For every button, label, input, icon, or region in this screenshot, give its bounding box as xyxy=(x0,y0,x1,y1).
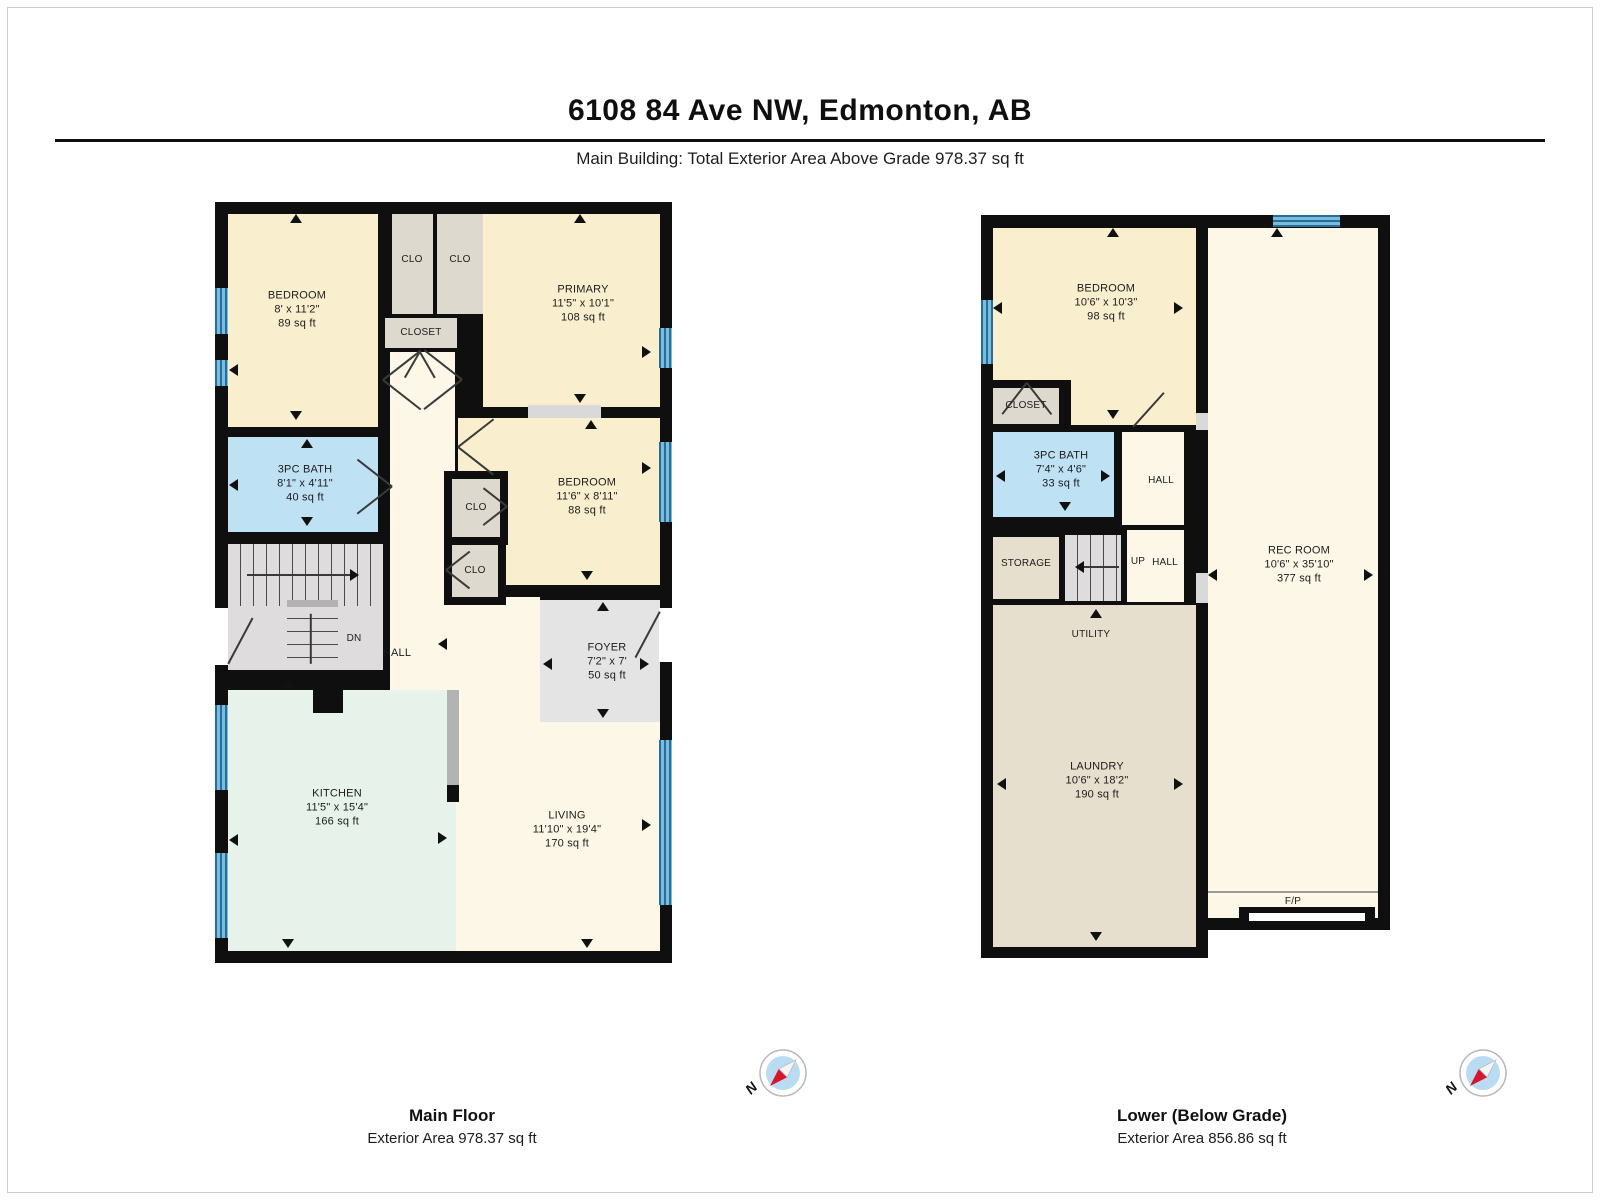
text-label: UP xyxy=(1131,556,1145,569)
overlay-sill xyxy=(528,405,601,418)
window xyxy=(215,288,228,334)
direction-arrow-icon xyxy=(585,420,597,429)
direction-arrow-icon xyxy=(438,638,447,650)
direction-arrow-icon xyxy=(282,939,294,948)
window xyxy=(659,740,672,905)
direction-arrow-icon xyxy=(229,479,238,491)
direction-arrow-icon xyxy=(997,778,1006,790)
label-living: LIVING 11'10" x 19'4" 170 sq ft xyxy=(533,809,601,850)
compass-rose-icon xyxy=(1459,1049,1507,1097)
main-floor-caption: Main Floor Exterior Area 978.37 sq ft xyxy=(252,1106,652,1147)
window xyxy=(659,328,672,368)
window xyxy=(215,853,228,938)
direction-arrow-icon xyxy=(640,658,649,670)
overlay-white xyxy=(1249,913,1365,921)
direction-arrow-icon xyxy=(438,832,447,844)
lower-floor: BEDROOM 10'6" x 10'3" 98 sq ft3PC BATH 7… xyxy=(981,215,1390,958)
direction-arrow-icon xyxy=(301,517,313,526)
direction-arrow-icon xyxy=(229,364,238,376)
direction-arrow-icon xyxy=(574,214,586,223)
direction-arrow-icon xyxy=(1075,561,1084,573)
direction-arrow-icon xyxy=(1107,410,1119,419)
page-title: 6108 84 Ave NW, Edmonton, AB xyxy=(0,94,1600,128)
overlay-wall xyxy=(447,785,459,802)
overlay-landing xyxy=(447,690,459,785)
title-divider xyxy=(55,139,1545,142)
window xyxy=(981,300,993,364)
overlay-sill xyxy=(1196,413,1208,430)
floorplan-page: { "header": { "title": "6108 84 Ave NW, … xyxy=(0,0,1600,1200)
door-swing-line xyxy=(1079,566,1119,568)
text-label: CLO xyxy=(464,565,485,578)
text-label: HALL xyxy=(1152,557,1178,570)
floor-name: Main Floor xyxy=(252,1106,652,1126)
lower-floor-caption: Lower (Below Grade) Exterior Area 856.86… xyxy=(1002,1106,1402,1147)
stairs xyxy=(287,606,338,670)
direction-arrow-icon xyxy=(543,658,552,670)
direction-arrow-icon xyxy=(301,439,313,448)
label-closet-hall: CLOSET xyxy=(400,327,441,340)
compass-north-label: N xyxy=(742,1079,760,1097)
window xyxy=(215,360,228,386)
compass-icon: N xyxy=(1459,1049,1507,1097)
direction-arrow-icon xyxy=(1364,569,1373,581)
direction-arrow-icon xyxy=(574,394,586,403)
direction-arrow-icon xyxy=(1107,228,1119,237)
direction-arrow-icon xyxy=(1101,470,1110,482)
direction-arrow-icon xyxy=(597,709,609,718)
direction-arrow-icon xyxy=(1271,228,1283,237)
label-rec-room: REC ROOM 10'6" x 35'10" 377 sq ft xyxy=(1264,544,1333,585)
direction-arrow-icon xyxy=(642,462,651,474)
overlay-fpline xyxy=(1208,891,1378,893)
direction-arrow-icon xyxy=(229,834,238,846)
direction-arrow-icon xyxy=(642,819,651,831)
label-closet-1: CLO xyxy=(401,254,422,267)
compass-rose-icon xyxy=(759,1049,807,1097)
door-swing-line xyxy=(310,614,312,664)
direction-arrow-icon xyxy=(350,569,359,581)
direction-arrow-icon xyxy=(1090,932,1102,941)
overlay-white xyxy=(215,608,228,665)
overlay-landing xyxy=(287,600,338,607)
door-swing-line xyxy=(247,574,353,576)
overlay-white xyxy=(659,608,672,662)
direction-arrow-icon xyxy=(597,602,609,611)
label-kitchen: KITCHEN 11'5" x 15'4" 166 sq ft xyxy=(306,787,368,828)
direction-arrow-icon xyxy=(290,411,302,420)
direction-arrow-icon xyxy=(993,302,1002,314)
label-hall-upper: HALL xyxy=(1148,475,1174,488)
stairs xyxy=(1065,535,1121,601)
floor-area: Exterior Area 978.37 sq ft xyxy=(252,1130,652,1147)
label-bedroom: BEDROOM 10'6" x 10'3" 98 sq ft xyxy=(1075,282,1138,323)
label-primary: PRIMARY 11'5" x 10'1" 108 sq ft xyxy=(552,283,614,324)
label-bath: 3PC BATH 8'1" x 4'11" 40 sq ft xyxy=(277,463,333,504)
direction-arrow-icon xyxy=(1208,569,1217,581)
label-foyer: FOYER 7'2" x 7' 50 sq ft xyxy=(587,641,627,682)
direction-arrow-icon xyxy=(1090,609,1102,618)
label-bedroom-1: BEDROOM 8' x 11'2" 89 sq ft xyxy=(268,289,326,330)
text-label: HALL xyxy=(383,647,411,661)
label-bedroom-2: BEDROOM 11'6" x 8'11" 88 sq ft xyxy=(556,476,617,517)
direction-arrow-icon xyxy=(1174,778,1183,790)
direction-arrow-icon xyxy=(581,939,593,948)
text-label: CLOSET xyxy=(1005,400,1046,413)
main-floor: BEDROOM 8' x 11'2" 89 sq ftCLOCLOCLOSETP… xyxy=(215,202,672,963)
window xyxy=(1273,215,1340,227)
direction-arrow-icon xyxy=(290,214,302,223)
compass-icon: N xyxy=(759,1049,807,1097)
direction-arrow-icon xyxy=(996,470,1005,482)
direction-arrow-icon xyxy=(581,571,593,580)
direction-arrow-icon xyxy=(282,679,294,688)
label-bath: 3PC BATH 7'4" x 4'6" 33 sq ft xyxy=(1034,449,1089,490)
label-closet-2: CLO xyxy=(449,254,470,267)
label-utility-laundry: LAUNDRY 10'6" x 18'2" 190 sq ft xyxy=(1066,760,1129,801)
text-label: DN xyxy=(347,633,362,646)
window xyxy=(659,442,672,522)
floor-area: Exterior Area 856.86 sq ft xyxy=(1002,1130,1402,1147)
page-subtitle: Main Building: Total Exterior Area Above… xyxy=(0,149,1600,169)
overlay-wall xyxy=(313,681,343,713)
text-label: F/P xyxy=(1285,896,1301,909)
compass-north-label: N xyxy=(1442,1079,1460,1097)
floor-name: Lower (Below Grade) xyxy=(1002,1106,1402,1126)
text-label: CLO xyxy=(465,502,486,515)
direction-arrow-icon xyxy=(1174,302,1183,314)
overlay-sill xyxy=(1196,573,1208,603)
window xyxy=(215,705,228,790)
text-label: UTILITY xyxy=(1072,629,1111,642)
label-storage: STORAGE xyxy=(1001,558,1051,571)
direction-arrow-icon xyxy=(1059,502,1071,511)
direction-arrow-icon xyxy=(642,346,651,358)
